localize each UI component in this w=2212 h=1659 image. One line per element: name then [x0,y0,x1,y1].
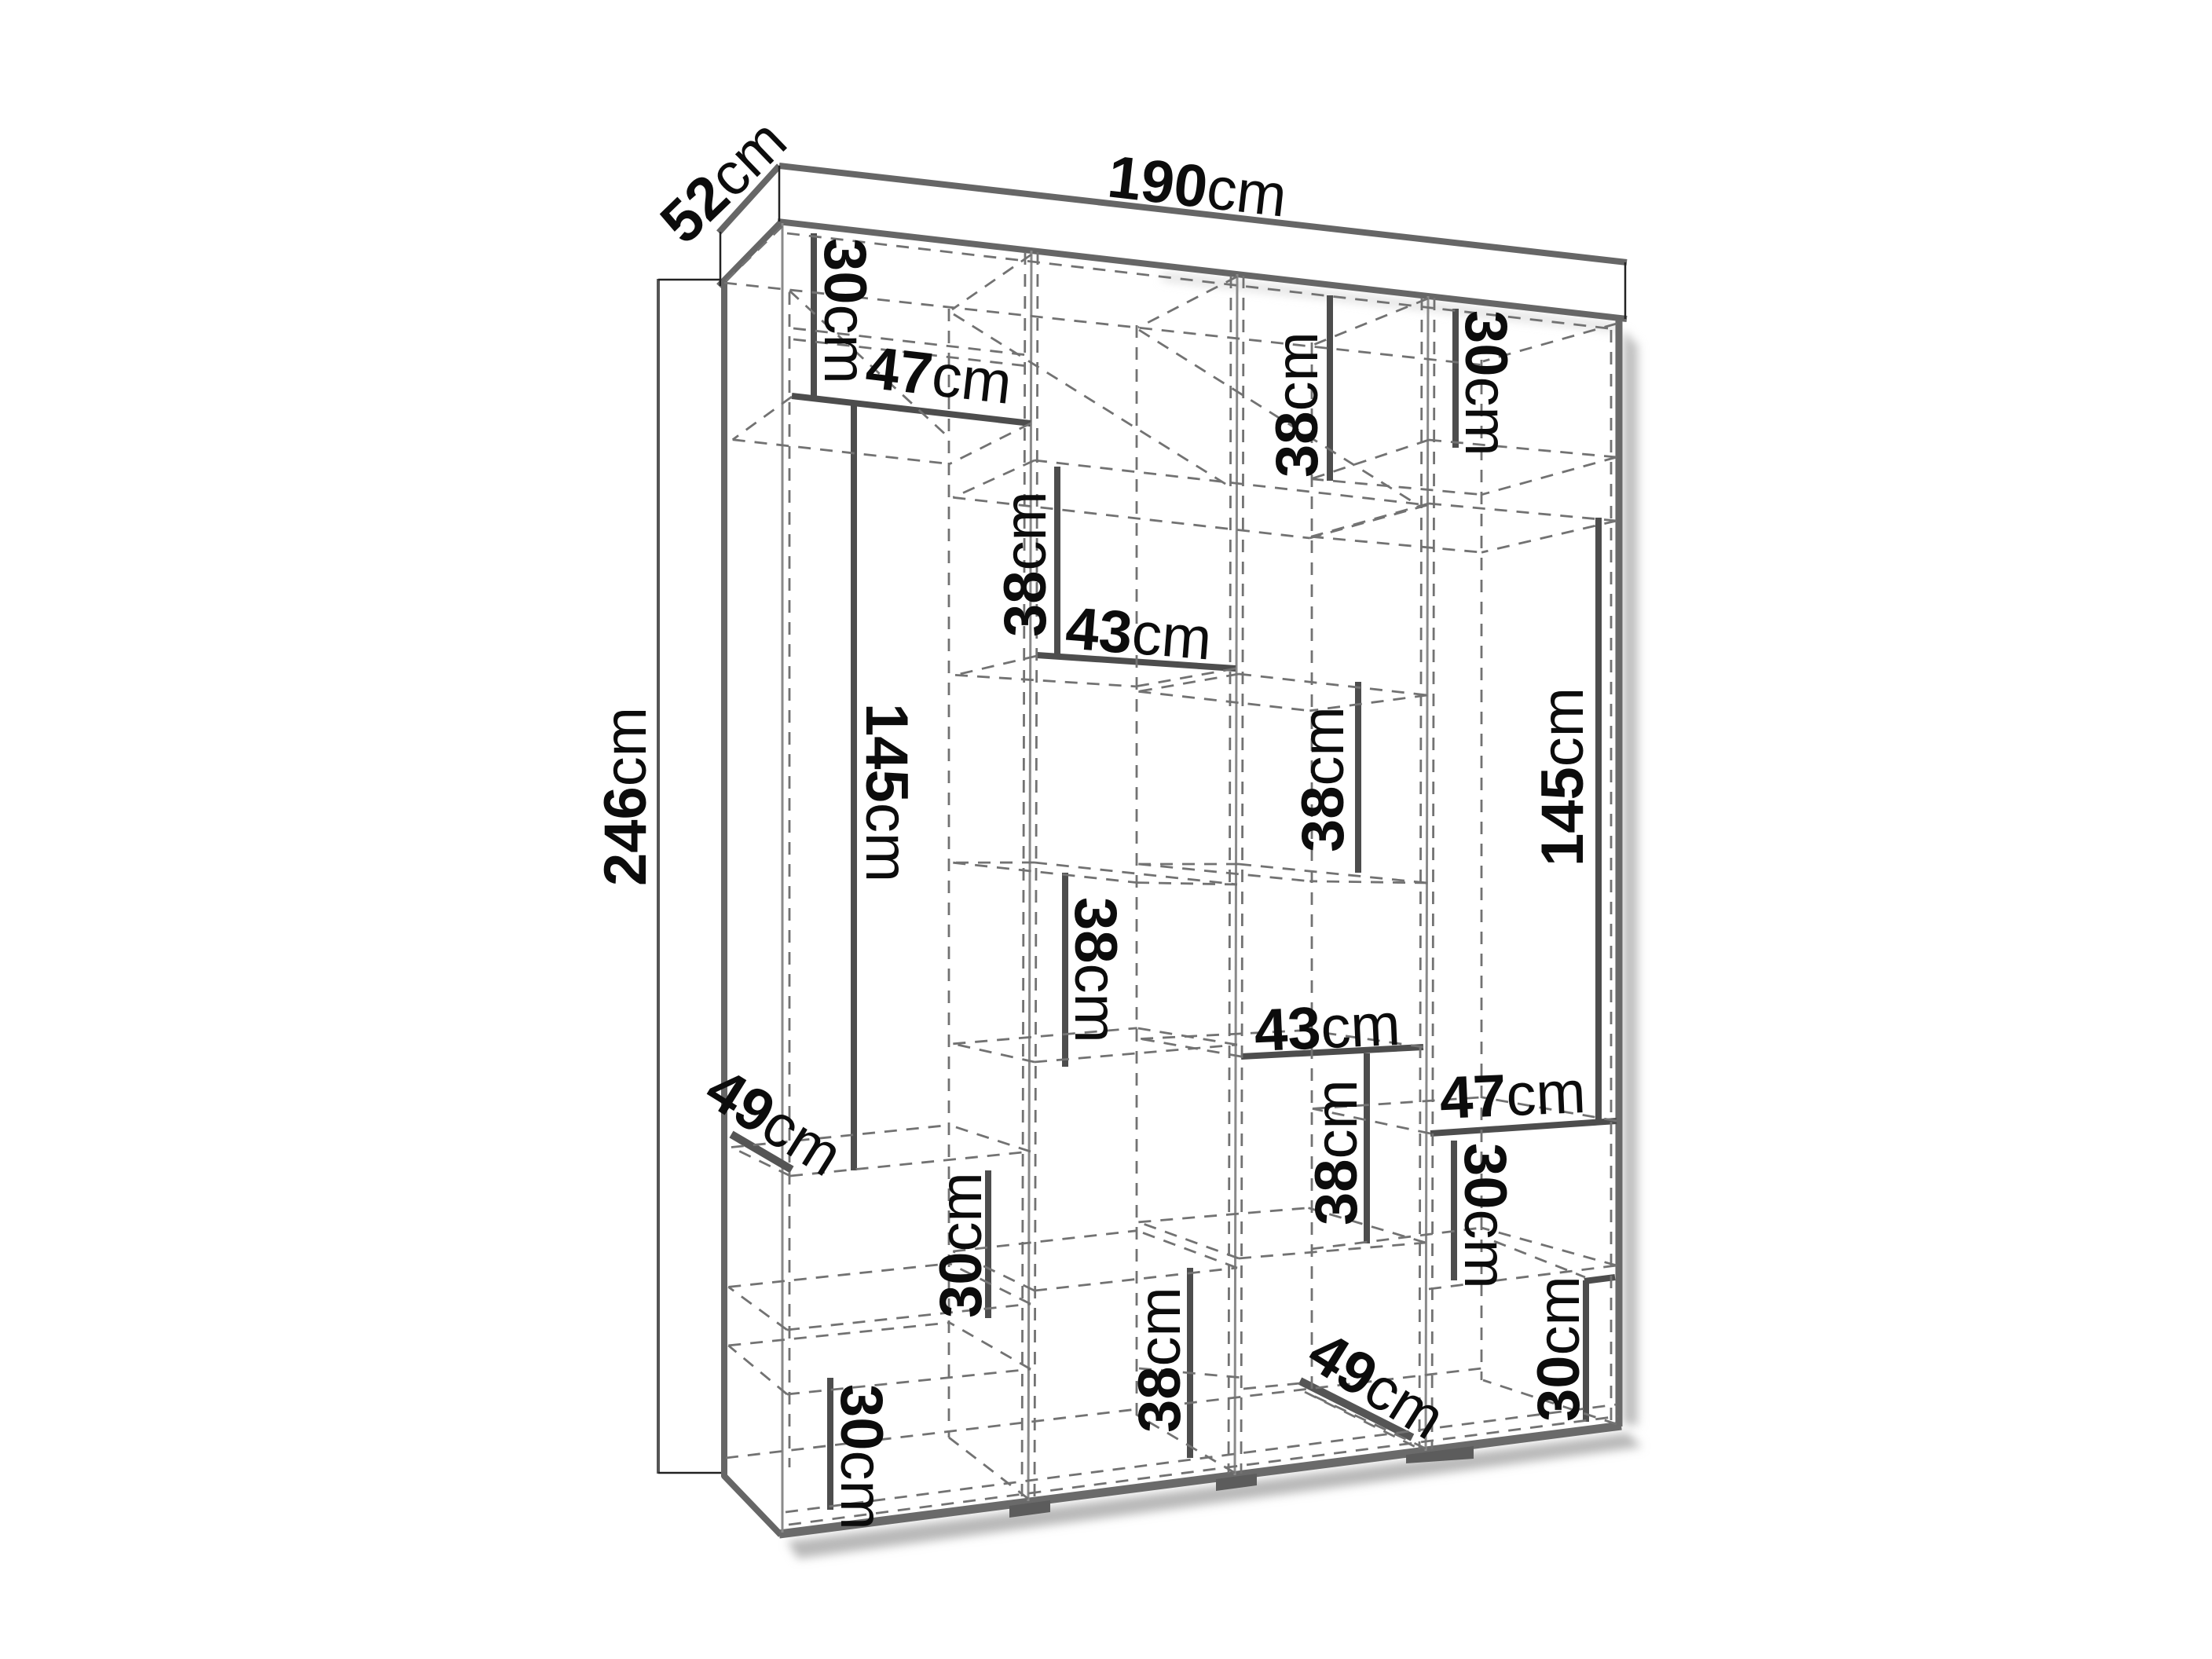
svg-text:145cm: 145cm [1529,687,1596,866]
svg-text:30cm: 30cm [1452,1143,1518,1289]
svg-text:43cm: 43cm [1253,991,1401,1064]
svg-text:30cm: 30cm [828,1384,895,1530]
svg-text:30cm: 30cm [1452,310,1519,456]
svg-text:145cm: 145cm [853,703,920,882]
svg-text:30cm: 30cm [1525,1276,1592,1422]
svg-text:38cm: 38cm [992,491,1059,637]
svg-text:38cm: 38cm [1290,706,1357,852]
svg-text:47cm: 47cm [1438,1059,1587,1132]
svg-text:30cm: 30cm [928,1172,994,1318]
svg-text:43cm: 43cm [1064,595,1214,672]
svg-text:38cm: 38cm [1264,331,1331,478]
svg-text:246cm: 246cm [592,707,659,886]
svg-text:38cm: 38cm [1062,897,1129,1043]
svg-text:38cm: 38cm [1126,1287,1193,1433]
svg-text:38cm: 38cm [1303,1079,1370,1225]
